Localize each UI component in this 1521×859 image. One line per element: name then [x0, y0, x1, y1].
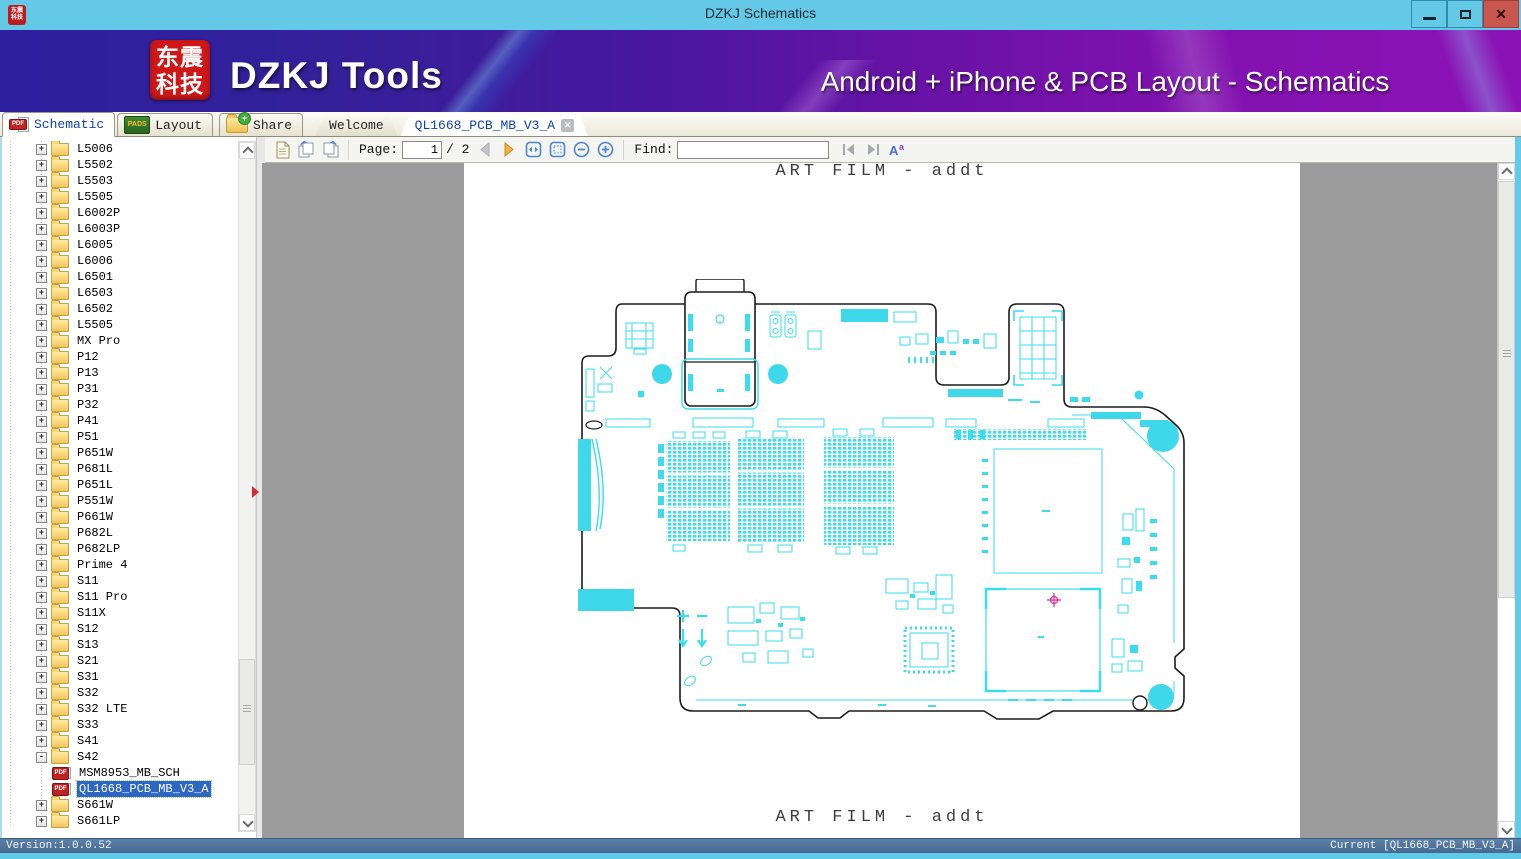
match-case-icon[interactable]: A a [885, 139, 909, 161]
tree-item[interactable]: + L6503 [2, 285, 238, 301]
page-total-label: / 2 [446, 142, 469, 157]
tree-item[interactable]: + S32 LTE [2, 701, 238, 717]
previous-page-icon[interactable] [473, 139, 497, 161]
tree-item-label: P13 [75, 365, 101, 381]
pdf-badge: PDF [52, 783, 69, 796]
collapse-panel-icon[interactable] [252, 486, 259, 498]
brand-tagline: Android + iPhone & PCB Layout - Schemati… [780, 66, 1430, 98]
tree-item-label: P682L [75, 525, 115, 541]
brand-logo-text-1: 东震 [150, 44, 210, 71]
page-number-input[interactable] [402, 141, 442, 159]
fit-page-svg [549, 141, 566, 158]
tree-expand-toggle[interactable]: + [36, 336, 47, 347]
scroll-up-icon[interactable] [1498, 163, 1515, 180]
tree-item-icon [51, 175, 69, 188]
tree-item-icon [51, 351, 69, 364]
tree-item-icon [51, 719, 69, 732]
tree-item-icon [51, 319, 69, 332]
tree-expand-toggle[interactable]: + [36, 320, 47, 331]
tree-expand-toggle[interactable]: + [36, 608, 47, 619]
tree-item-label: Prime 4 [75, 557, 129, 573]
current-document-label: Current [QL1668_PCB_MB_V3_A] [1330, 839, 1515, 853]
tree-item-icon [51, 335, 69, 348]
tree-item-icon: PDF [52, 767, 71, 779]
tab-share[interactable]: Share [219, 113, 303, 136]
toolbar-separator [348, 140, 349, 160]
prev-arrow-svg [478, 142, 492, 157]
tree-item-icon [51, 479, 69, 492]
doc-tab-close-icon[interactable]: ✕ [561, 119, 574, 132]
tree-item-label: L6003P [75, 221, 122, 237]
rotate-right-svg [321, 141, 340, 159]
tree-item-icon [51, 623, 69, 636]
tree-expand-toggle[interactable]: + [36, 352, 47, 363]
scroll-up-icon[interactable] [239, 142, 255, 159]
tab-bar: PDF Schematic PADS Layout Share Welcome … [0, 112, 1521, 137]
tab-schematic-label: Schematic [34, 117, 104, 132]
scroll-down-icon[interactable] [239, 814, 255, 831]
tree-expand-toggle[interactable]: + [36, 416, 47, 427]
tree-item-icon [51, 751, 69, 764]
window-title: DZKJ Schematics [0, 5, 1521, 21]
scrollbar-grip [1503, 350, 1511, 358]
file-tree-panel: + L5006 + L5502 + L5503 + L5505 + L6002P [0, 137, 262, 838]
title-bar: 东震 科技 DZKJ Schematics ✕ [0, 0, 1521, 31]
tree-expand-toggle[interactable]: + [36, 688, 47, 699]
page-icon-svg [274, 141, 291, 159]
tree-item-label: P651L [75, 477, 115, 493]
pdf-badge: PDF [9, 119, 27, 130]
tree-expand-toggle[interactable]: + [36, 656, 47, 667]
tree-item[interactable]: + L5502 [2, 157, 238, 173]
tree-expand-toggle[interactable]: + [36, 480, 47, 491]
tree-item-label: S11 [75, 573, 101, 589]
tab-layout-label: Layout [155, 118, 202, 133]
tree-item-icon [51, 303, 69, 316]
tree-item-label: L5505 [75, 317, 115, 333]
tree-item-icon [51, 383, 69, 396]
tree-item-icon [51, 415, 69, 428]
tree-item[interactable]: + P651W [2, 445, 238, 461]
tree-item-label: L6006 [75, 253, 115, 269]
tree-item[interactable]: + P661W [2, 509, 238, 525]
tree-expand-toggle[interactable]: + [36, 576, 47, 587]
tree-item[interactable]: + P551W [2, 493, 238, 509]
share-folder-icon [226, 117, 248, 133]
fit-width-icon[interactable] [521, 139, 545, 161]
tree-item-icon [51, 639, 69, 652]
tree-item-icon [51, 703, 69, 716]
tree-item-icon [51, 575, 69, 588]
header-banner: 东震 科技 DZKJ Tools Android + iPhone & PCB … [0, 30, 1521, 112]
tree-item[interactable]: + P651L [2, 477, 238, 493]
tree-item[interactable]: + S21 [2, 653, 238, 669]
tree-item-label: L5502 [75, 157, 115, 173]
match-case-svg: A a [888, 142, 906, 158]
tree-item[interactable]: + P12 [2, 349, 238, 365]
tab-schematic[interactable]: PDF Schematic [2, 112, 115, 137]
brand-logo-text-2: 科技 [150, 71, 210, 98]
tree-item-label: S661W [75, 797, 115, 813]
tree-item-label: L6005 [75, 237, 115, 253]
zoom-in-svg [597, 141, 614, 158]
version-label: Version:1.0.0.52 [6, 839, 112, 853]
tree-expand-toggle[interactable]: + [36, 176, 47, 187]
svg-text:A: A [889, 143, 899, 158]
tree-expand-toggle[interactable]: + [36, 368, 47, 379]
tree-item[interactable]: + L6002P [2, 205, 238, 221]
tree-expand-toggle[interactable]: + [36, 224, 47, 235]
tree-item-icon [51, 207, 69, 220]
tree-item[interactable]: + P32 [2, 397, 238, 413]
tree-item-label: L5006 [75, 141, 115, 157]
tree-item-label: S11X [75, 605, 108, 621]
next-arrow-svg [502, 142, 516, 157]
tree-item-icon [51, 159, 69, 172]
find-label: Find: [634, 142, 673, 157]
tree-item[interactable]: + P51 [2, 429, 238, 445]
pdf-page: ART FILM - addt [464, 163, 1300, 838]
tree-item-label: L6502 [75, 301, 115, 317]
tree-expand-toggle[interactable]: + [36, 448, 47, 459]
tree-item[interactable]: + L5503 [2, 173, 238, 189]
tree-item-label: S41 [75, 733, 101, 749]
pdf-viewport[interactable]: ART FILM - addt [262, 163, 1497, 838]
tree-item-label: L6002P [75, 205, 122, 221]
tree-item[interactable]: + P13 [2, 365, 238, 381]
tree-expand-toggle[interactable]: - [36, 752, 47, 763]
maximize-button[interactable] [1447, 0, 1483, 28]
rotate-left-svg [297, 141, 316, 159]
tree-item[interactable]: + S11 Pro [2, 589, 238, 605]
tree-item-label: QL1668_PCB_MB_V3_A [77, 781, 211, 797]
find-next-icon[interactable] [861, 139, 885, 161]
tree-item-icon [51, 223, 69, 236]
tree-item[interactable]: + L6003P [2, 221, 238, 237]
status-bar: Version:1.0.0.52 Current [QL1668_PCB_MB_… [0, 838, 1521, 853]
tree-expand-toggle[interactable]: + [36, 160, 47, 171]
tree-item[interactable]: + S12 [2, 621, 238, 637]
tree-item-label: L6501 [75, 269, 115, 285]
tree-item[interactable]: + S41 [2, 733, 238, 749]
tree-item-icon [51, 447, 69, 460]
tree-item-icon [51, 559, 69, 572]
tree-item-icon [51, 271, 69, 284]
tree-item-icon: PDF [52, 783, 71, 795]
tree-expand-toggle[interactable]: + [36, 512, 47, 523]
tree-item-label: S42 [75, 749, 101, 765]
doc-tab-current-label: QL1668_PCB_MB_V3_A [415, 118, 555, 133]
fit-width-svg [525, 141, 542, 158]
tree-expand-toggle[interactable]: + [36, 240, 47, 251]
tree-item-icon [51, 671, 69, 684]
tab-layout[interactable]: PADS Layout [117, 113, 213, 136]
tree-item-label: S32 LTE [75, 701, 129, 717]
tree-item-icon [51, 607, 69, 620]
tree-item[interactable]: + L6501 [2, 269, 238, 285]
tree-expand-toggle[interactable]: + [36, 704, 47, 715]
tree-item-icon [51, 191, 69, 204]
tree-expand-toggle[interactable]: + [36, 208, 47, 219]
tree-item[interactable]: + S13 [2, 637, 238, 653]
tree-item[interactable]: + P682L [2, 525, 238, 541]
page-label: Page: [359, 142, 398, 157]
window-border-bottom [0, 853, 1521, 859]
tree-item-label: P682LP [75, 541, 122, 557]
brand-title: DZKJ Tools [230, 55, 443, 97]
tree-item[interactable]: + L6502 [2, 301, 238, 317]
new-page-icon[interactable] [270, 139, 294, 161]
close-icon: ✕ [1495, 6, 1507, 23]
tree-item[interactable]: + S661W [2, 797, 238, 813]
tree-item-label: P661W [75, 509, 115, 525]
tree-expand-toggle[interactable]: + [36, 720, 47, 731]
tree-item-label: P551W [75, 493, 115, 509]
tree-item-label: P41 [75, 413, 101, 429]
pdf-toolbar: Page: / 2 Find: [262, 137, 1521, 163]
scroll-down-icon[interactable] [1498, 821, 1515, 838]
tree-item[interactable]: + L5505 [2, 317, 238, 333]
window-border-right [1515, 137, 1521, 853]
zoom-in-icon[interactable] [593, 139, 617, 161]
tree-item-icon [51, 143, 69, 156]
svg-text:a: a [899, 142, 905, 152]
doc-tab-welcome[interactable]: Welcome [315, 114, 398, 136]
find-previous-icon[interactable] [837, 139, 861, 161]
tree-item-label: P31 [75, 381, 101, 397]
tree-expand-toggle[interactable]: + [36, 800, 47, 811]
tree-item[interactable]: + P682LP [2, 541, 238, 557]
tree-item-icon [51, 495, 69, 508]
tree-item[interactable]: + L5006 [2, 141, 238, 157]
tree-item-label: S21 [75, 653, 101, 669]
minimize-button[interactable] [1411, 0, 1447, 28]
tree-item-label: L6503 [75, 285, 115, 301]
scrollbar-grip [243, 705, 251, 713]
tree-item[interactable]: + S11X [2, 605, 238, 621]
tree-item-label: L5503 [75, 173, 115, 189]
close-button[interactable]: ✕ [1483, 0, 1519, 28]
tree-item-label: S13 [75, 637, 101, 653]
pdf-page-icon: PDF [9, 117, 29, 133]
pdf-scrollbar[interactable] [1497, 163, 1515, 838]
tree-item-label: MSM8953_MB_SCH [77, 765, 182, 781]
zoom-out-svg [573, 141, 590, 158]
find-prev-svg [841, 142, 857, 157]
maximize-icon [1460, 10, 1471, 19]
find-next-svg [865, 142, 881, 157]
tree-item-icon [51, 463, 69, 476]
tree-item-icon [51, 655, 69, 668]
tree-item-icon [51, 255, 69, 268]
tree-expand-toggle[interactable]: + [36, 544, 47, 555]
tree-item-icon [51, 591, 69, 604]
art-film-footer: ART FILM - addt [464, 808, 1300, 827]
tree-item[interactable]: + L5505 [2, 189, 238, 205]
rotate-left-icon[interactable] [294, 139, 318, 161]
tree-item[interactable]: - S42 [2, 749, 238, 765]
art-film-header: ART FILM - addt [464, 163, 1300, 181]
file-tree: + L5006 + L5502 + L5503 + L5505 + L6002P [2, 141, 238, 832]
tree-item-icon [51, 431, 69, 444]
tree-expand-toggle[interactable]: + [36, 432, 47, 443]
tree-item-label: S11 Pro [75, 589, 129, 605]
zoom-out-icon[interactable] [569, 139, 593, 161]
tree-item-icon [51, 511, 69, 524]
tree-item[interactable]: PDF MSM8953_MB_SCH [2, 765, 238, 781]
next-page-icon[interactable] [497, 139, 521, 161]
tree-expand-toggle[interactable]: + [36, 272, 47, 283]
tree-item[interactable]: + P41 [2, 413, 238, 429]
minimize-icon [1423, 17, 1436, 20]
tree-item[interactable]: + Prime 4 [2, 557, 238, 573]
tree-expand-toggle[interactable]: + [36, 464, 47, 475]
tree-item[interactable]: + P31 [2, 381, 238, 397]
tree-item-label: S32 [75, 685, 101, 701]
doc-tab-welcome-label: Welcome [329, 118, 384, 133]
tree-expand-toggle[interactable]: + [36, 624, 47, 635]
tree-item[interactable]: + S661LP [2, 813, 238, 829]
tree-item[interactable]: + P681L [2, 461, 238, 477]
tree-item-label: P12 [75, 349, 101, 365]
tree-item-label: S12 [75, 621, 101, 637]
tree-item-icon [51, 367, 69, 380]
tree-expand-toggle[interactable]: + [36, 192, 47, 203]
tree-item[interactable]: + S33 [2, 717, 238, 733]
tree-item-icon [51, 543, 69, 556]
tree-item-label: P651W [75, 445, 115, 461]
tree-item-label: P32 [75, 397, 101, 413]
tree-expand-toggle[interactable]: + [36, 496, 47, 507]
tree-item-icon [51, 799, 69, 812]
tree-expand-toggle[interactable]: + [36, 592, 47, 603]
tree-item-icon [51, 527, 69, 540]
tree-item-label: S33 [75, 717, 101, 733]
tree-expand-toggle[interactable]: + [36, 384, 47, 395]
window-controls: ✕ [1411, 0, 1519, 28]
tree-item[interactable]: + S31 [2, 669, 238, 685]
tree-item-icon [51, 399, 69, 412]
tree-item-icon [51, 239, 69, 252]
fit-page-icon[interactable] [545, 139, 569, 161]
tree-item-label: P51 [75, 429, 101, 445]
tree-scrollbar-thumb[interactable] [239, 659, 255, 765]
tree-expand-toggle[interactable]: + [36, 640, 47, 651]
tree-item[interactable]: + S32 [2, 685, 238, 701]
toolbar-separator [623, 140, 624, 160]
tree-item-label: S31 [75, 669, 101, 685]
tree-item[interactable]: + MX Pro [2, 333, 238, 349]
tree-expand-toggle[interactable]: + [36, 816, 47, 827]
tree-expand-toggle[interactable]: + [36, 672, 47, 683]
brand-logo: 东震 科技 [150, 40, 210, 100]
tree-expand-toggle[interactable]: + [36, 736, 47, 747]
tree-expand-toggle[interactable]: + [36, 400, 47, 411]
tree-expand-toggle[interactable]: + [36, 288, 47, 299]
pdf-badge: PDF [52, 767, 69, 780]
tree-expand-toggle[interactable]: + [36, 256, 47, 267]
tree-item-icon [51, 815, 69, 828]
tree-item[interactable]: + S11 [2, 573, 238, 589]
tree-item-label: L5505 [75, 189, 115, 205]
tree-item[interactable]: + L6006 [2, 253, 238, 269]
tree-item[interactable]: PDF QL1668_PCB_MB_V3_A [2, 781, 238, 797]
tree-item-label: MX Pro [75, 333, 122, 349]
doc-tab-current[interactable]: QL1668_PCB_MB_V3_A ✕ [401, 114, 588, 136]
rotate-right-icon[interactable] [318, 139, 342, 161]
tree-item-icon [51, 287, 69, 300]
pcb-art-film-drawing [578, 279, 1198, 729]
tree-item-icon [51, 687, 69, 700]
pads-icon: PADS [124, 116, 150, 134]
find-input[interactable] [677, 141, 829, 159]
tree-item[interactable]: + L6005 [2, 237, 238, 253]
tree-item-label: S661LP [75, 813, 122, 829]
tree-expand-toggle[interactable]: + [36, 144, 47, 155]
tree-item-label: P681L [75, 461, 115, 477]
tree-expand-toggle[interactable]: + [36, 304, 47, 315]
tree-expand-toggle[interactable]: + [36, 560, 47, 571]
tree-item-icon [51, 735, 69, 748]
pdf-scrollbar-thumb[interactable] [1498, 181, 1515, 598]
tab-share-label: Share [253, 118, 292, 133]
tree-expand-toggle[interactable]: + [36, 528, 47, 539]
